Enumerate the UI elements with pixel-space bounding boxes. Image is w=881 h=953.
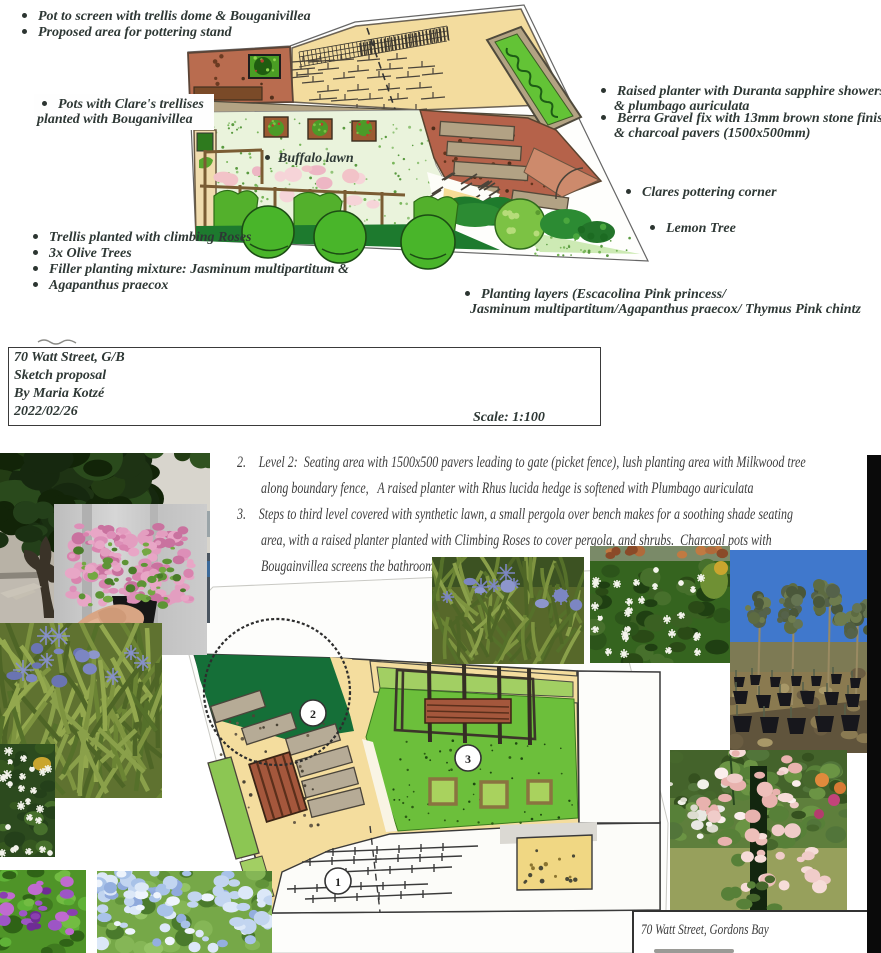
svg-text:2: 2: [310, 707, 316, 721]
svg-text:1: 1: [335, 875, 341, 889]
svg-text:3: 3: [465, 752, 471, 766]
